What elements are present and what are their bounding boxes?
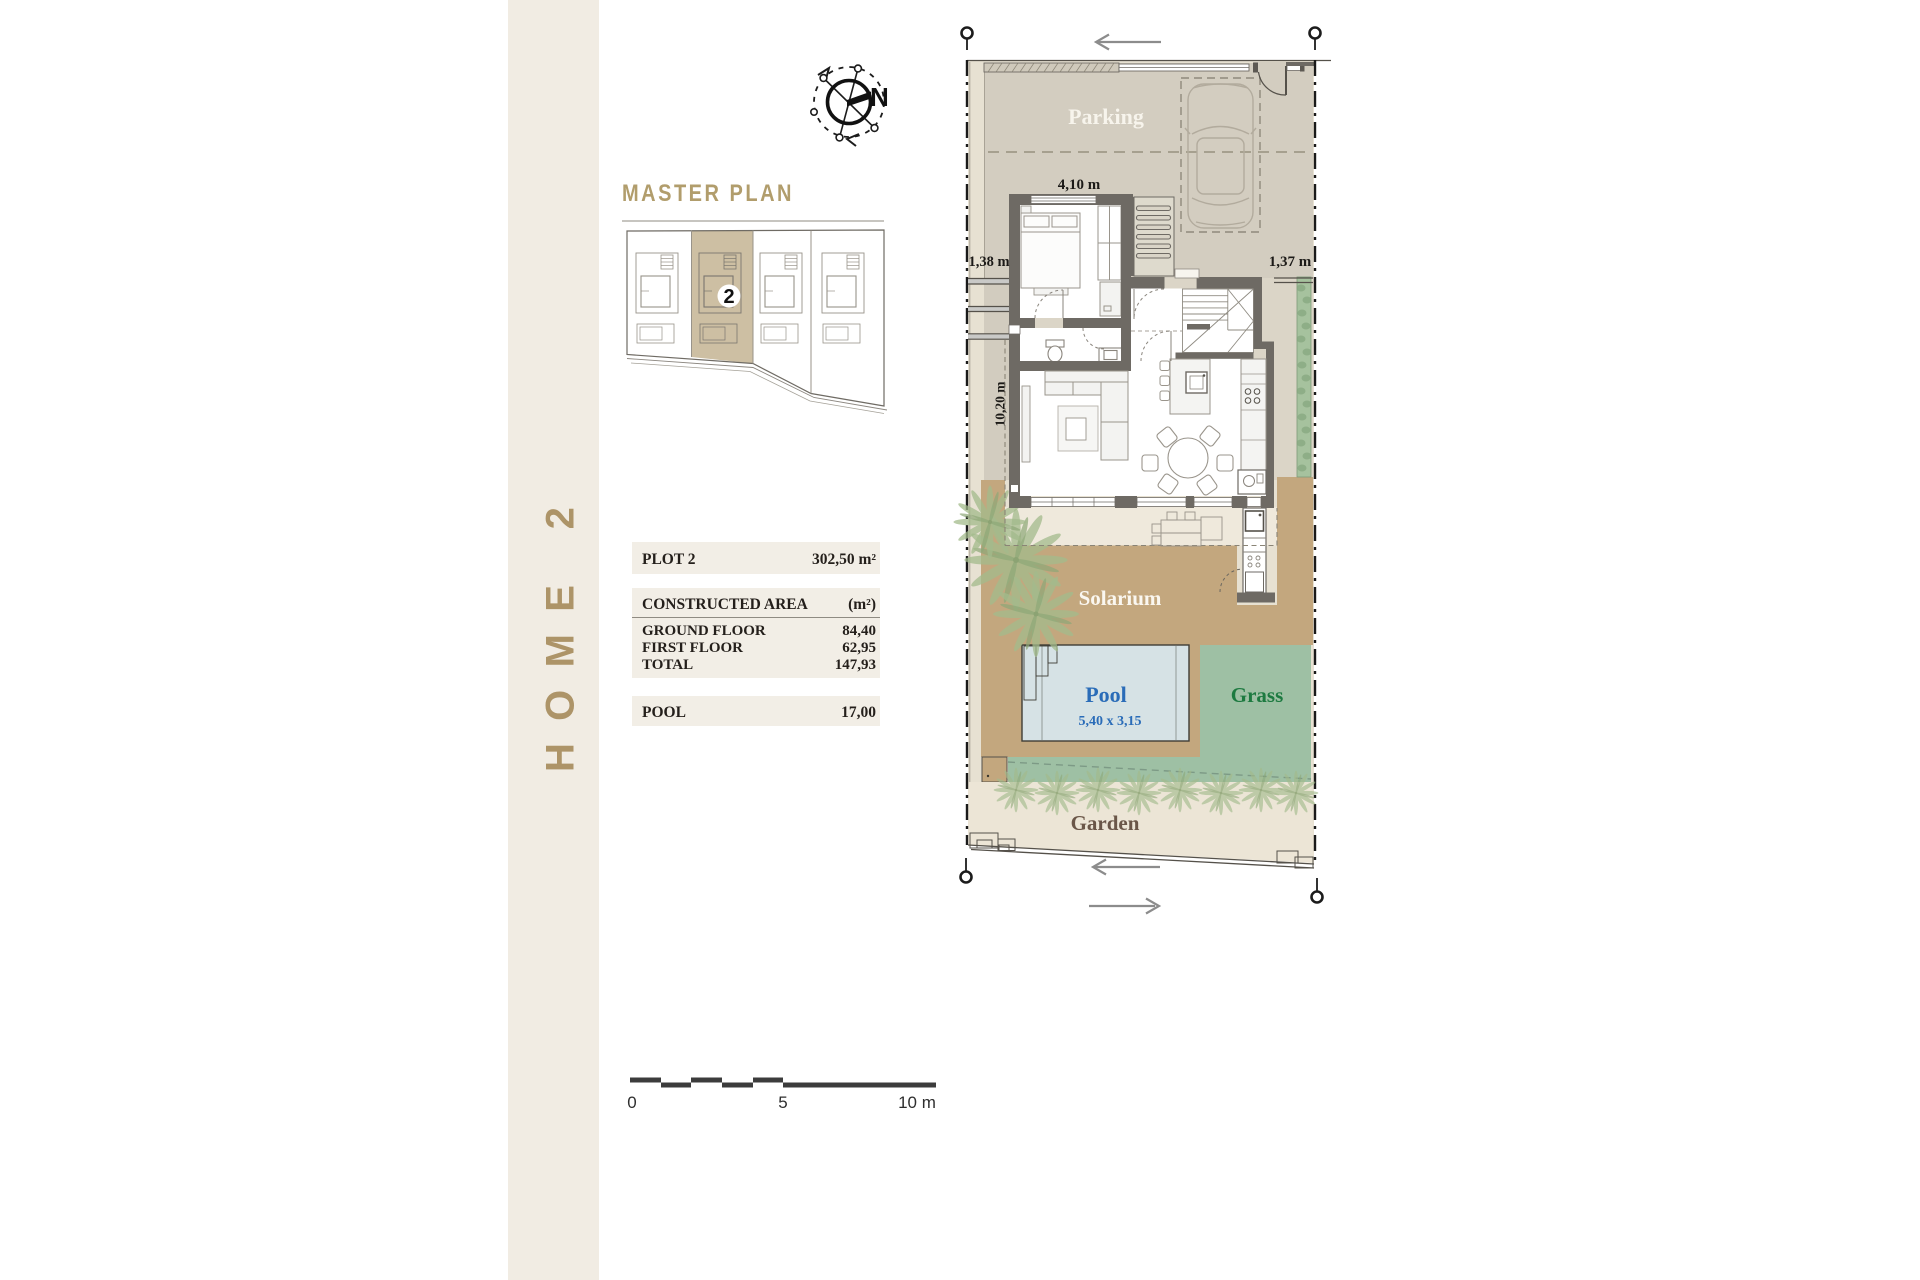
svg-text:10,20 m: 10,20 m (993, 381, 1008, 427)
svg-text:302,50 m²: 302,50 m² (812, 551, 876, 568)
svg-text:10 m: 10 m (898, 1093, 936, 1112)
svg-text:CONSTRUCTED AREA: CONSTRUCTED AREA (642, 596, 809, 613)
svg-text:Garden: Garden (1071, 811, 1140, 835)
svg-text:1,38 m: 1,38 m (968, 254, 1009, 270)
svg-text:(m²): (m²) (848, 596, 876, 613)
svg-text:POOL: POOL (642, 704, 686, 721)
svg-text:4,10 m: 4,10 m (1058, 177, 1101, 193)
svg-text:Grass: Grass (1231, 683, 1284, 707)
svg-text:5: 5 (778, 1093, 787, 1112)
svg-text:17,00: 17,00 (841, 704, 876, 721)
svg-text:HOME 2: HOME 2 (539, 485, 583, 772)
svg-text:Parking: Parking (1068, 104, 1144, 129)
svg-text:FIRST FLOOR: FIRST FLOOR (642, 640, 743, 656)
svg-text:84,40: 84,40 (842, 623, 876, 639)
svg-text:N: N (870, 82, 889, 112)
svg-text:GROUND FLOOR: GROUND FLOOR (642, 623, 766, 639)
svg-text:PLOT 2: PLOT 2 (642, 551, 696, 568)
svg-text:Solarium: Solarium (1079, 586, 1162, 610)
svg-text:62,95: 62,95 (842, 640, 876, 656)
svg-text:2: 2 (723, 286, 734, 308)
svg-text:Pool: Pool (1085, 682, 1127, 707)
svg-text:147,93: 147,93 (835, 657, 876, 673)
svg-text:TOTAL: TOTAL (642, 657, 693, 673)
svg-text:5,40 x 3,15: 5,40 x 3,15 (1079, 714, 1142, 729)
svg-text:1,37 m: 1,37 m (1269, 254, 1312, 270)
svg-text:0: 0 (627, 1093, 636, 1112)
svg-text:MASTER PLAN: MASTER PLAN (622, 180, 794, 207)
